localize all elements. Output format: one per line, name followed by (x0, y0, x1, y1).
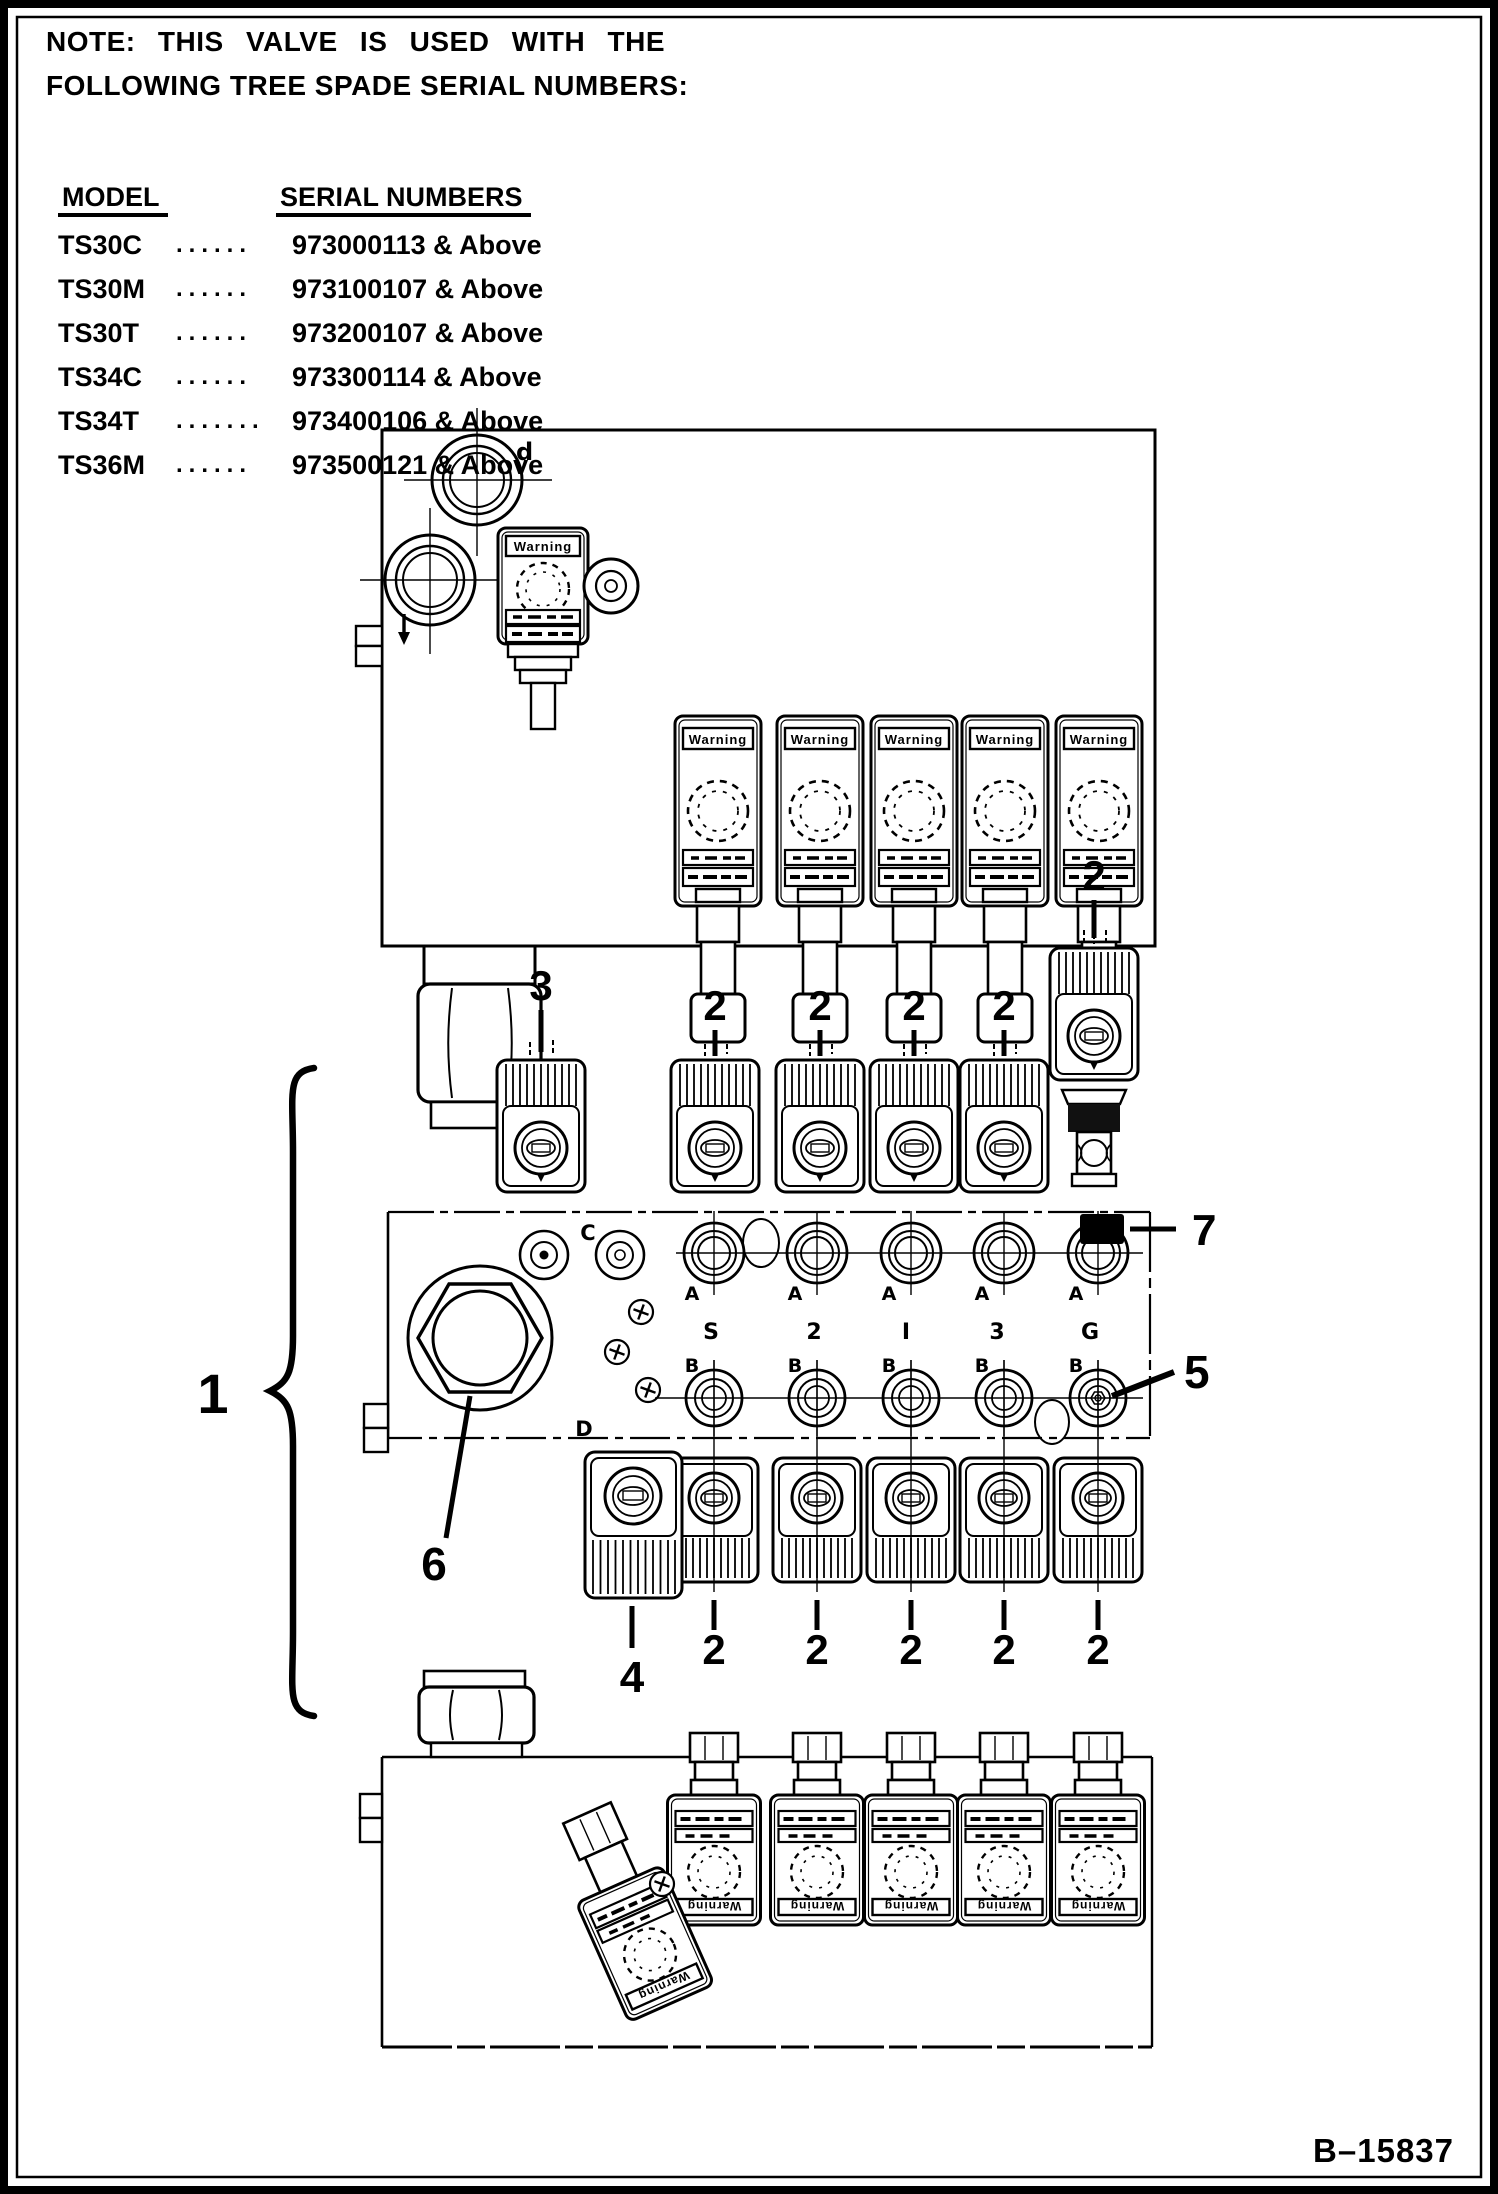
port-label-B: B (788, 1355, 802, 1377)
hex-fitting (419, 1671, 534, 1757)
model-cell: TS34T (58, 399, 176, 443)
port-label-B: B (1069, 1355, 1083, 1377)
screw-icon (629, 1300, 653, 1324)
callout-2: 2 (805, 1626, 828, 1673)
solenoid-coil-raised (1050, 948, 1138, 1080)
screw-icon (605, 1340, 629, 1364)
bottom-view-drawing (360, 1671, 1152, 2047)
station-label-1: I (902, 1320, 910, 1345)
station-label-G: G (1081, 1320, 1099, 1345)
dot-leader: ...... (176, 355, 292, 399)
callout-2: 2 (992, 982, 1015, 1029)
serial-cell: 973100107 & Above (292, 267, 543, 311)
port-label-A: A (975, 1283, 990, 1305)
solenoid-coil-item4 (585, 1452, 682, 1598)
port-label-C: C (580, 1221, 595, 1245)
table-row: TS34T ....... 973400106 & Above (58, 399, 543, 443)
table-header: MODEL SERIAL NUMBERS (58, 182, 543, 213)
solenoid-coil-item3 (497, 1060, 585, 1192)
station-label-2: 2 (806, 1320, 821, 1345)
note-line1: NOTE: THIS VALVE IS USED WITH THE (46, 20, 766, 64)
callout-2: 2 (703, 982, 726, 1029)
table-row: TS30C ...... 973000113 & Above (58, 223, 543, 267)
callout-2: 2 (902, 982, 925, 1029)
callout-2: 2 (1086, 1626, 1109, 1673)
station-label-S: S (703, 1320, 719, 1345)
coil-brand-label: Warning (514, 539, 573, 554)
port-label-A: A (1069, 1283, 1084, 1305)
callout-2: 2 (702, 1626, 725, 1673)
callout-6: 6 (421, 1538, 447, 1590)
model-cell: TS30M (58, 267, 176, 311)
callout-5: 5 (1184, 1346, 1210, 1398)
assembly-brace (270, 1068, 314, 1716)
lower-coil-row (585, 1360, 1142, 1598)
model-cell: TS30C (58, 223, 176, 267)
serial-cell: 973400106 & Above (292, 399, 543, 443)
solenoid-coil-row-bottom-view (668, 1733, 1145, 1925)
callout-1: 1 (197, 1362, 228, 1425)
callout-2: 2 (899, 1626, 922, 1673)
callout-7: 7 (1192, 1206, 1216, 1255)
model-cell: TS36M (58, 443, 176, 487)
dot-leader: ....... (176, 399, 292, 443)
table-row: TS30M ...... 973100107 & Above (58, 267, 543, 311)
note-line2: FOLLOWING TREE SPADE SERIAL NUMBERS: (46, 64, 766, 108)
port-label-B: B (685, 1355, 699, 1377)
port-label-A: A (882, 1283, 897, 1305)
hex-plug-item6 (408, 1266, 552, 1410)
model-cell: TS30T (58, 311, 176, 355)
top-view-drawing: d Warning (356, 408, 1155, 1128)
station-label-3: 3 (989, 1320, 1004, 1345)
callout-2: 2 (992, 1626, 1015, 1673)
note-block: NOTE: THIS VALVE IS USED WITH THE FOLLOW… (46, 20, 766, 108)
dot-leader: ...... (176, 223, 292, 267)
model-cell: TS34C (58, 355, 176, 399)
table-row: TS36M ...... 973500121 & Above (58, 443, 543, 487)
serial-cell: 973300114 & Above (292, 355, 542, 399)
port-label-A: A (788, 1283, 803, 1305)
exploded-view-drawing: 1 3 2 2 2 2 2 (197, 852, 1216, 1716)
serial-cell: 973200107 & Above (292, 311, 543, 355)
catalog-page: Warning Warning (0, 0, 1498, 2194)
dot-leader: ...... (176, 311, 292, 355)
cartridge-valve (1062, 1090, 1126, 1186)
callout-2: 2 (1082, 852, 1105, 899)
table-row: TS34C ...... 973300114 & Above (58, 355, 543, 399)
dot-leader: ...... (176, 267, 292, 311)
col-model: MODEL (58, 182, 168, 217)
port-label-A: A (685, 1283, 700, 1305)
serial-cell: 973500121 & Above (292, 443, 543, 487)
callout-3: 3 (529, 962, 552, 1009)
port-label-B: B (882, 1355, 896, 1377)
serial-cell: 973000113 & Above (292, 223, 542, 267)
port-label-B: B (975, 1355, 989, 1377)
gauge-port-icon (596, 1231, 644, 1279)
callout-2: 2 (808, 982, 831, 1029)
dot-leader: ...... (176, 443, 292, 487)
gauge-port-icon (520, 1231, 568, 1279)
table-row: TS30T ...... 973200107 & Above (58, 311, 543, 355)
port-label-D: D (575, 1417, 592, 1441)
col-serial: SERIAL NUMBERS (276, 182, 531, 217)
valve-body-front-view: C A A A A A S 2 I 3 G B B B B B (364, 1211, 1150, 1452)
callout-4: 4 (620, 1653, 645, 1702)
figure-reference: B–15837 (1313, 2132, 1454, 2170)
eyelet-icon (584, 559, 638, 613)
serial-number-table: MODEL SERIAL NUMBERS TS30C ...... 973000… (58, 182, 543, 487)
screw-icon (650, 1872, 674, 1896)
